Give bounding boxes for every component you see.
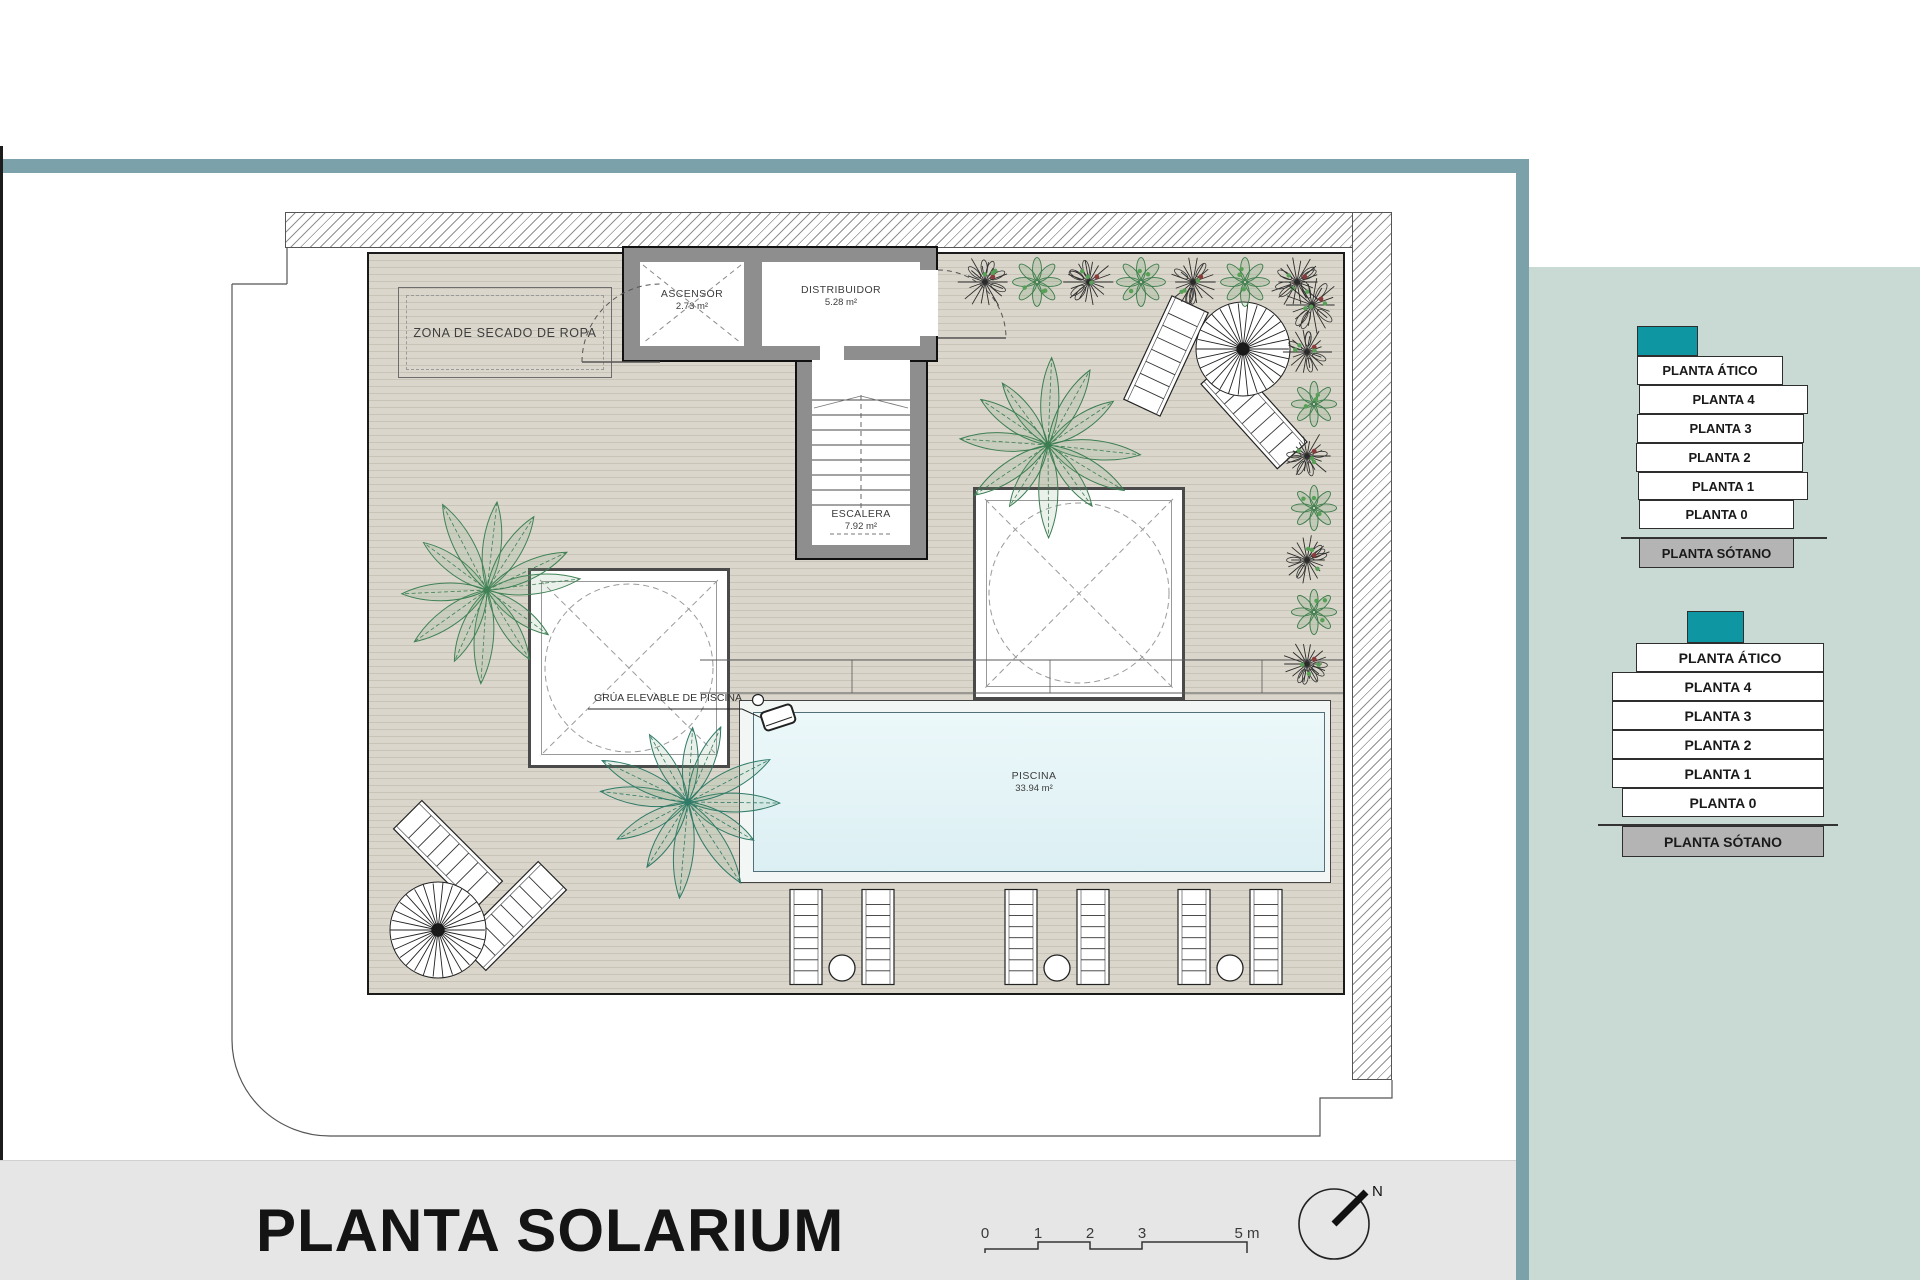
skylight-right-inner xyxy=(986,500,1172,687)
skylight-right xyxy=(973,487,1185,700)
stack2-atico: PLANTA ÁTICO xyxy=(1636,643,1824,672)
distributor-door-gap xyxy=(920,270,938,336)
stack1-highlight xyxy=(1637,326,1698,356)
parapet-hatch-right xyxy=(1352,212,1392,1080)
stack2-sotano: PLANTA SÓTANO xyxy=(1622,826,1824,857)
frame-bar-vertical xyxy=(1516,159,1529,1280)
stack2-p3: PLANTA 3 xyxy=(1612,701,1824,730)
stack2-highlight xyxy=(1687,611,1744,643)
label-pool-hoist: GRÚA ELEVABLE DE PISCINA xyxy=(560,692,742,704)
stack1-p3: PLANTA 3 xyxy=(1637,414,1804,443)
frame-bar-horizontal xyxy=(0,159,1529,173)
stair-door-gap xyxy=(820,346,844,362)
stack2-p1: PLANTA 1 xyxy=(1612,759,1824,788)
stack1-sotano: PLANTA SÓTANO xyxy=(1639,538,1794,568)
drawing-title: PLANTA SOLARIUM xyxy=(256,1196,844,1265)
stack2-p0: PLANTA 0 xyxy=(1622,788,1824,817)
sheet-left-border xyxy=(0,146,3,1160)
stack1-p0: PLANTA 0 xyxy=(1639,500,1794,529)
stack1-p2: PLANTA 2 xyxy=(1636,443,1803,472)
drying-zone-label: ZONA DE SECADO DE ROPA xyxy=(413,326,596,340)
sheet: ZONA DE SECADO DE ROPA xyxy=(0,0,1920,1280)
stack2-p4: PLANTA 4 xyxy=(1612,672,1824,701)
drying-zone: ZONA DE SECADO DE ROPA xyxy=(398,287,612,378)
label-ascensor: ASCENSOR 2.73 m² xyxy=(661,288,723,312)
label-distribuidor: DISTRIBUIDOR 5.28 m² xyxy=(801,284,881,308)
skylight-left-inner xyxy=(541,581,717,755)
stack1-atico: PLANTA ÁTICO xyxy=(1637,356,1783,385)
label-escalera: ESCALERA 7.92 m² xyxy=(831,508,890,532)
stack2-p2: PLANTA 2 xyxy=(1612,730,1824,759)
parapet-hatch-top xyxy=(285,212,1392,248)
stack1-p1: PLANTA 1 xyxy=(1638,472,1808,500)
label-piscina: PISCINA 33.94 m² xyxy=(1012,770,1057,794)
skylight-left xyxy=(528,568,730,768)
stack1-p4: PLANTA 4 xyxy=(1639,385,1808,414)
